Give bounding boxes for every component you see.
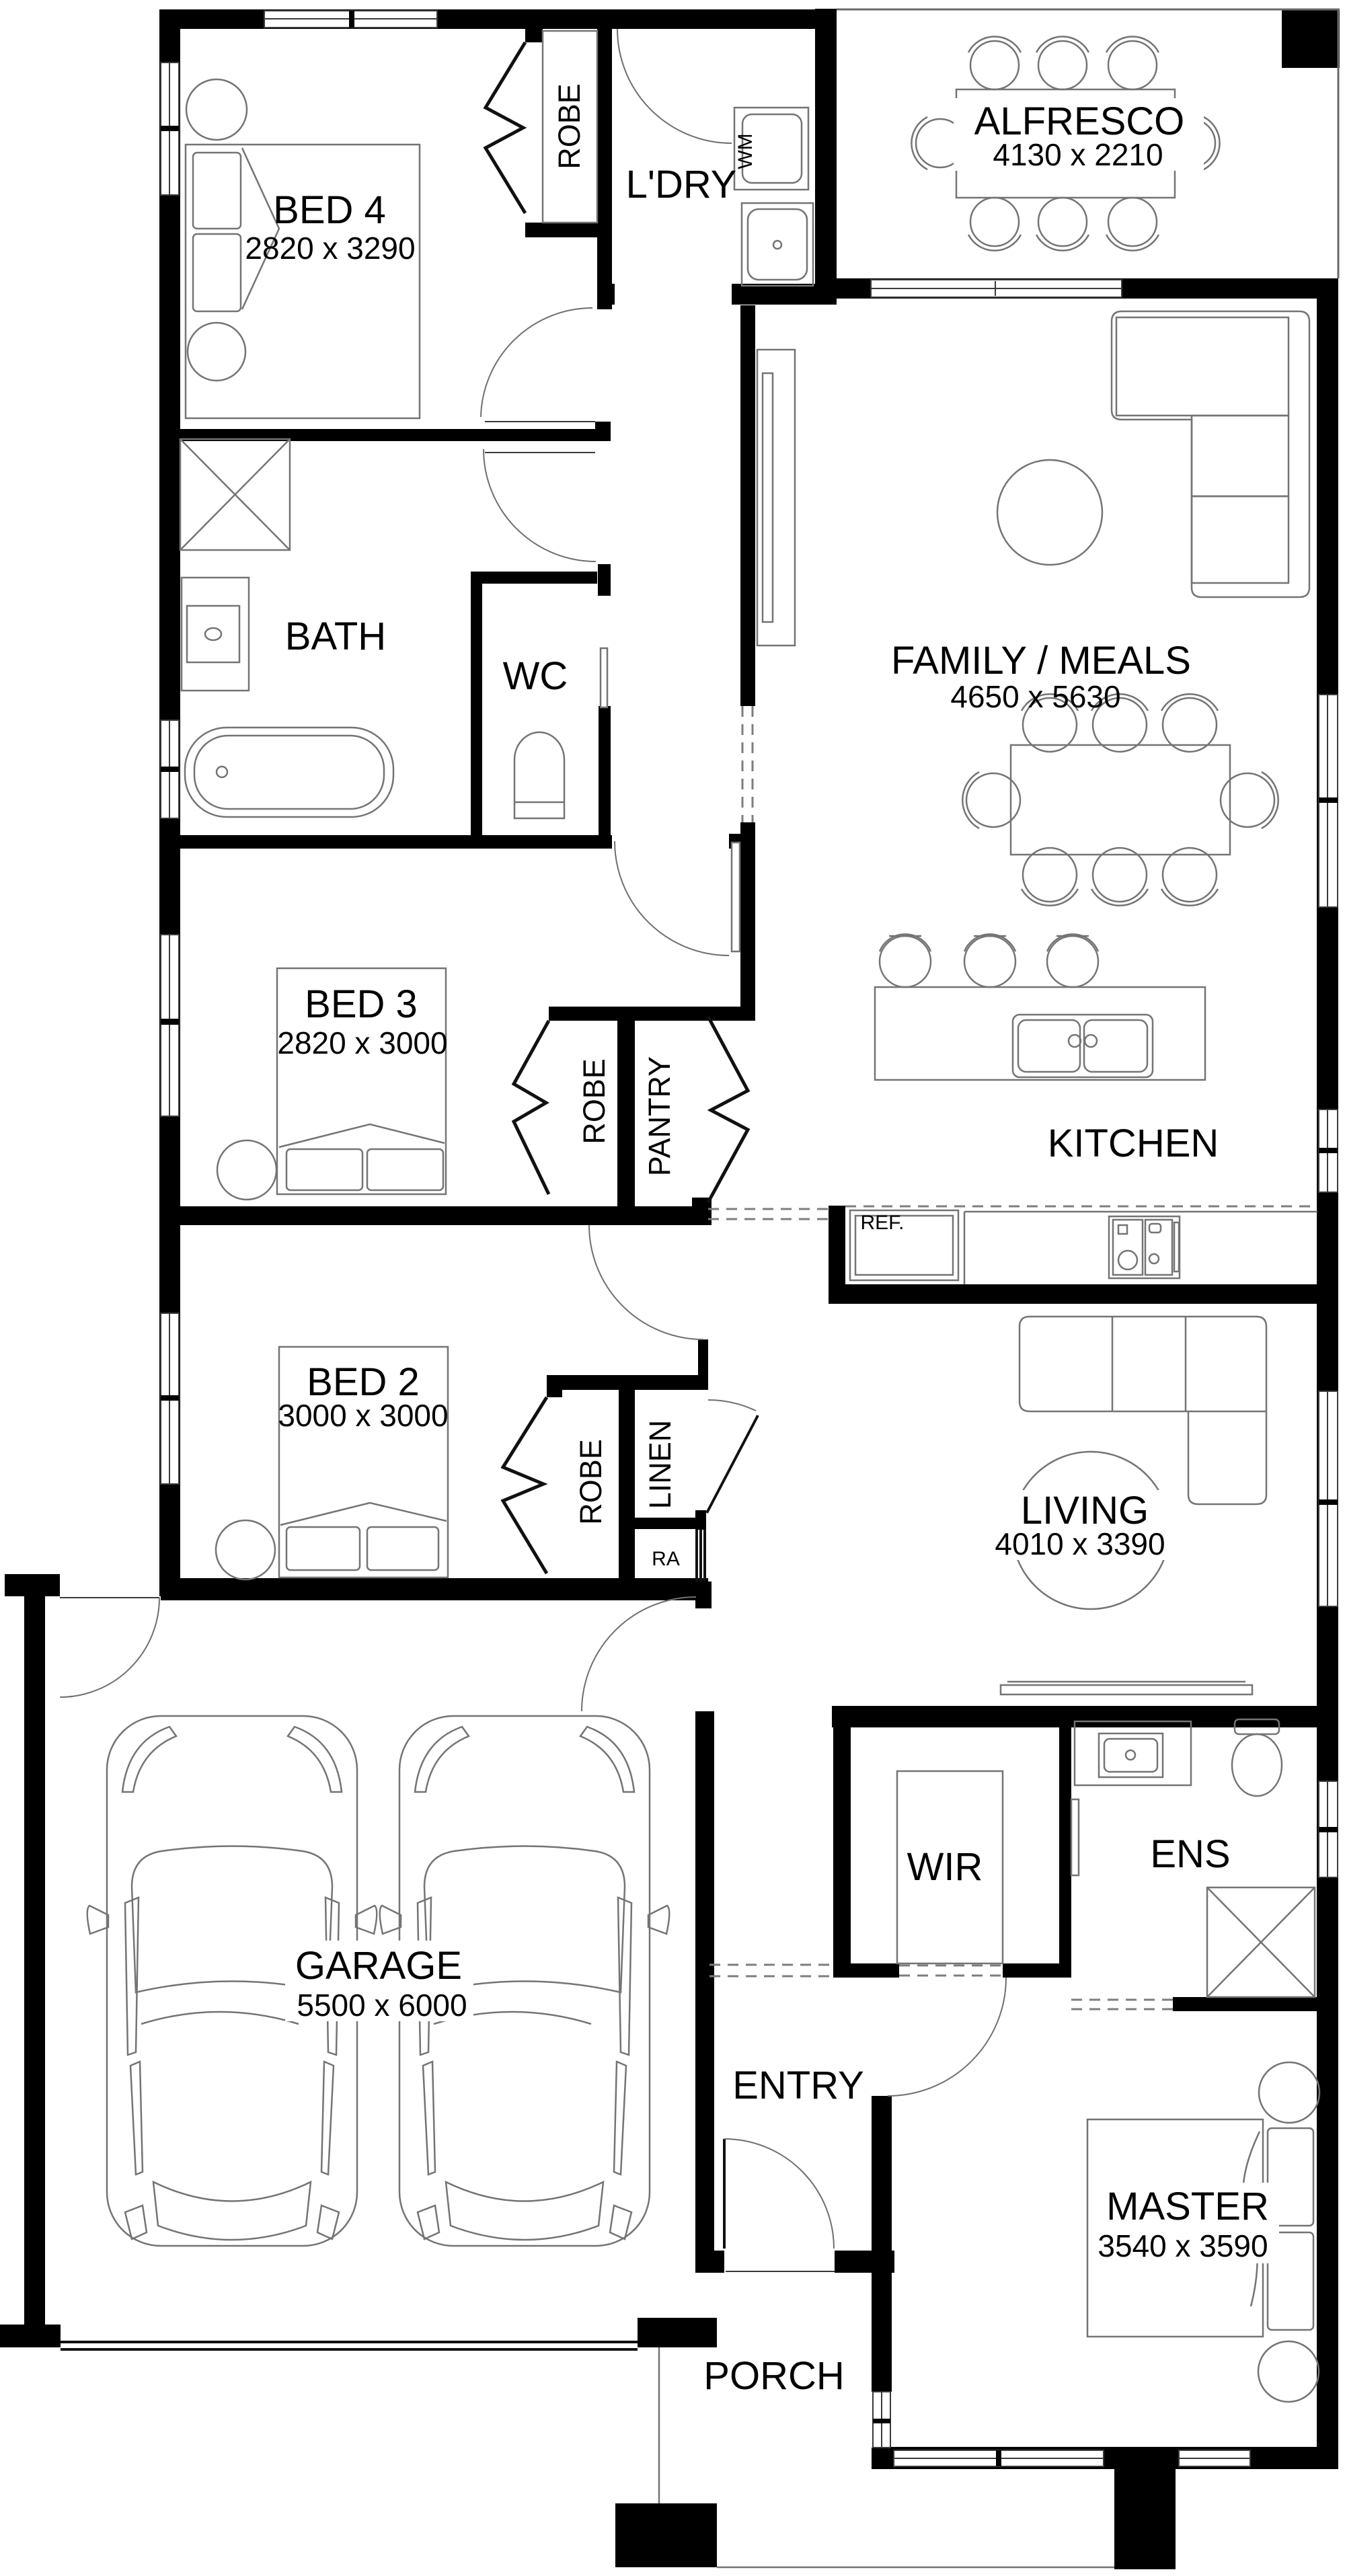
svg-text:5500 x 6000: 5500 x 6000 [297,1988,467,2023]
svg-text:BED 4: BED 4 [273,188,386,232]
svg-text:WIR: WIR [907,1845,983,1889]
svg-text:ROBE: ROBE [577,1058,611,1144]
svg-text:ROBE: ROBE [552,83,586,169]
svg-text:ENS: ENS [1150,1832,1230,1876]
svg-text:3000 x 3000: 3000 x 3000 [278,1398,448,1433]
svg-text:PORCH: PORCH [703,2354,844,2398]
svg-text:4650 x 5630: 4650 x 5630 [950,679,1120,714]
svg-text:BED 3: BED 3 [305,982,418,1026]
svg-text:GARAGE: GARAGE [295,1944,462,1988]
svg-text:REF.: REF. [860,1212,904,1234]
svg-text:2820 x 3000: 2820 x 3000 [277,1025,447,1060]
svg-text:PANTRY: PANTRY [642,1056,677,1176]
svg-text:4130 x 2210: 4130 x 2210 [993,137,1163,172]
svg-text:FAMILY / MEALS: FAMILY / MEALS [891,639,1191,682]
svg-text:WC: WC [503,654,568,698]
svg-text:RA: RA [652,1548,680,1570]
svg-text:ENTRY: ENTRY [732,2064,864,2107]
svg-text:4010 x 3390: 4010 x 3390 [995,1526,1165,1561]
svg-text:L'DRY: L'DRY [626,163,737,206]
svg-text:ROBE: ROBE [574,1439,608,1525]
svg-text:BATH: BATH [285,615,386,658]
svg-text:MASTER: MASTER [1106,2185,1269,2228]
svg-text:2820 x 3290: 2820 x 3290 [245,231,415,266]
svg-text:LINEN: LINEN [643,1420,677,1510]
svg-text:KITCHEN: KITCHEN [1048,1122,1219,1165]
svg-text:WM: WM [734,133,757,169]
svg-text:3540 x 3590: 3540 x 3590 [1098,2228,1268,2263]
